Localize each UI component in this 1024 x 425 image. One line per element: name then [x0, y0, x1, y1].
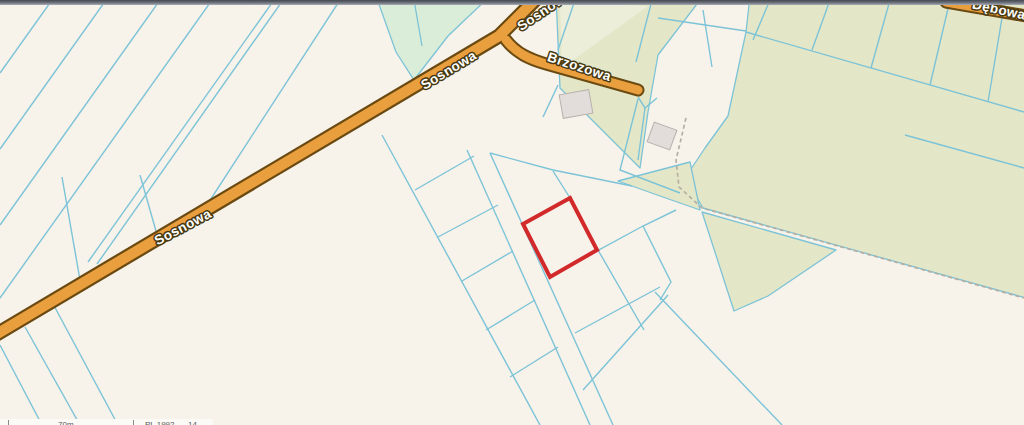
- window-top-edge-bar: [0, 0, 1024, 5]
- scale-right-value: 14: [188, 420, 197, 425]
- scale-distance-label: 70m: [58, 420, 74, 425]
- crs-label: PL 1992: [145, 420, 175, 425]
- map-viewport[interactable]: Sosnowa Sosnowa Sosnowa Brzozowa Dębowa …: [0, 0, 1024, 425]
- scale-bar: 70m PL 1992 14: [0, 419, 213, 425]
- building-1: [559, 90, 593, 119]
- scale-tick-left: [8, 420, 9, 425]
- scale-tick-right: [133, 420, 134, 425]
- map-canvas[interactable]: Sosnowa Sosnowa Sosnowa Brzozowa Dębowa: [0, 0, 1024, 425]
